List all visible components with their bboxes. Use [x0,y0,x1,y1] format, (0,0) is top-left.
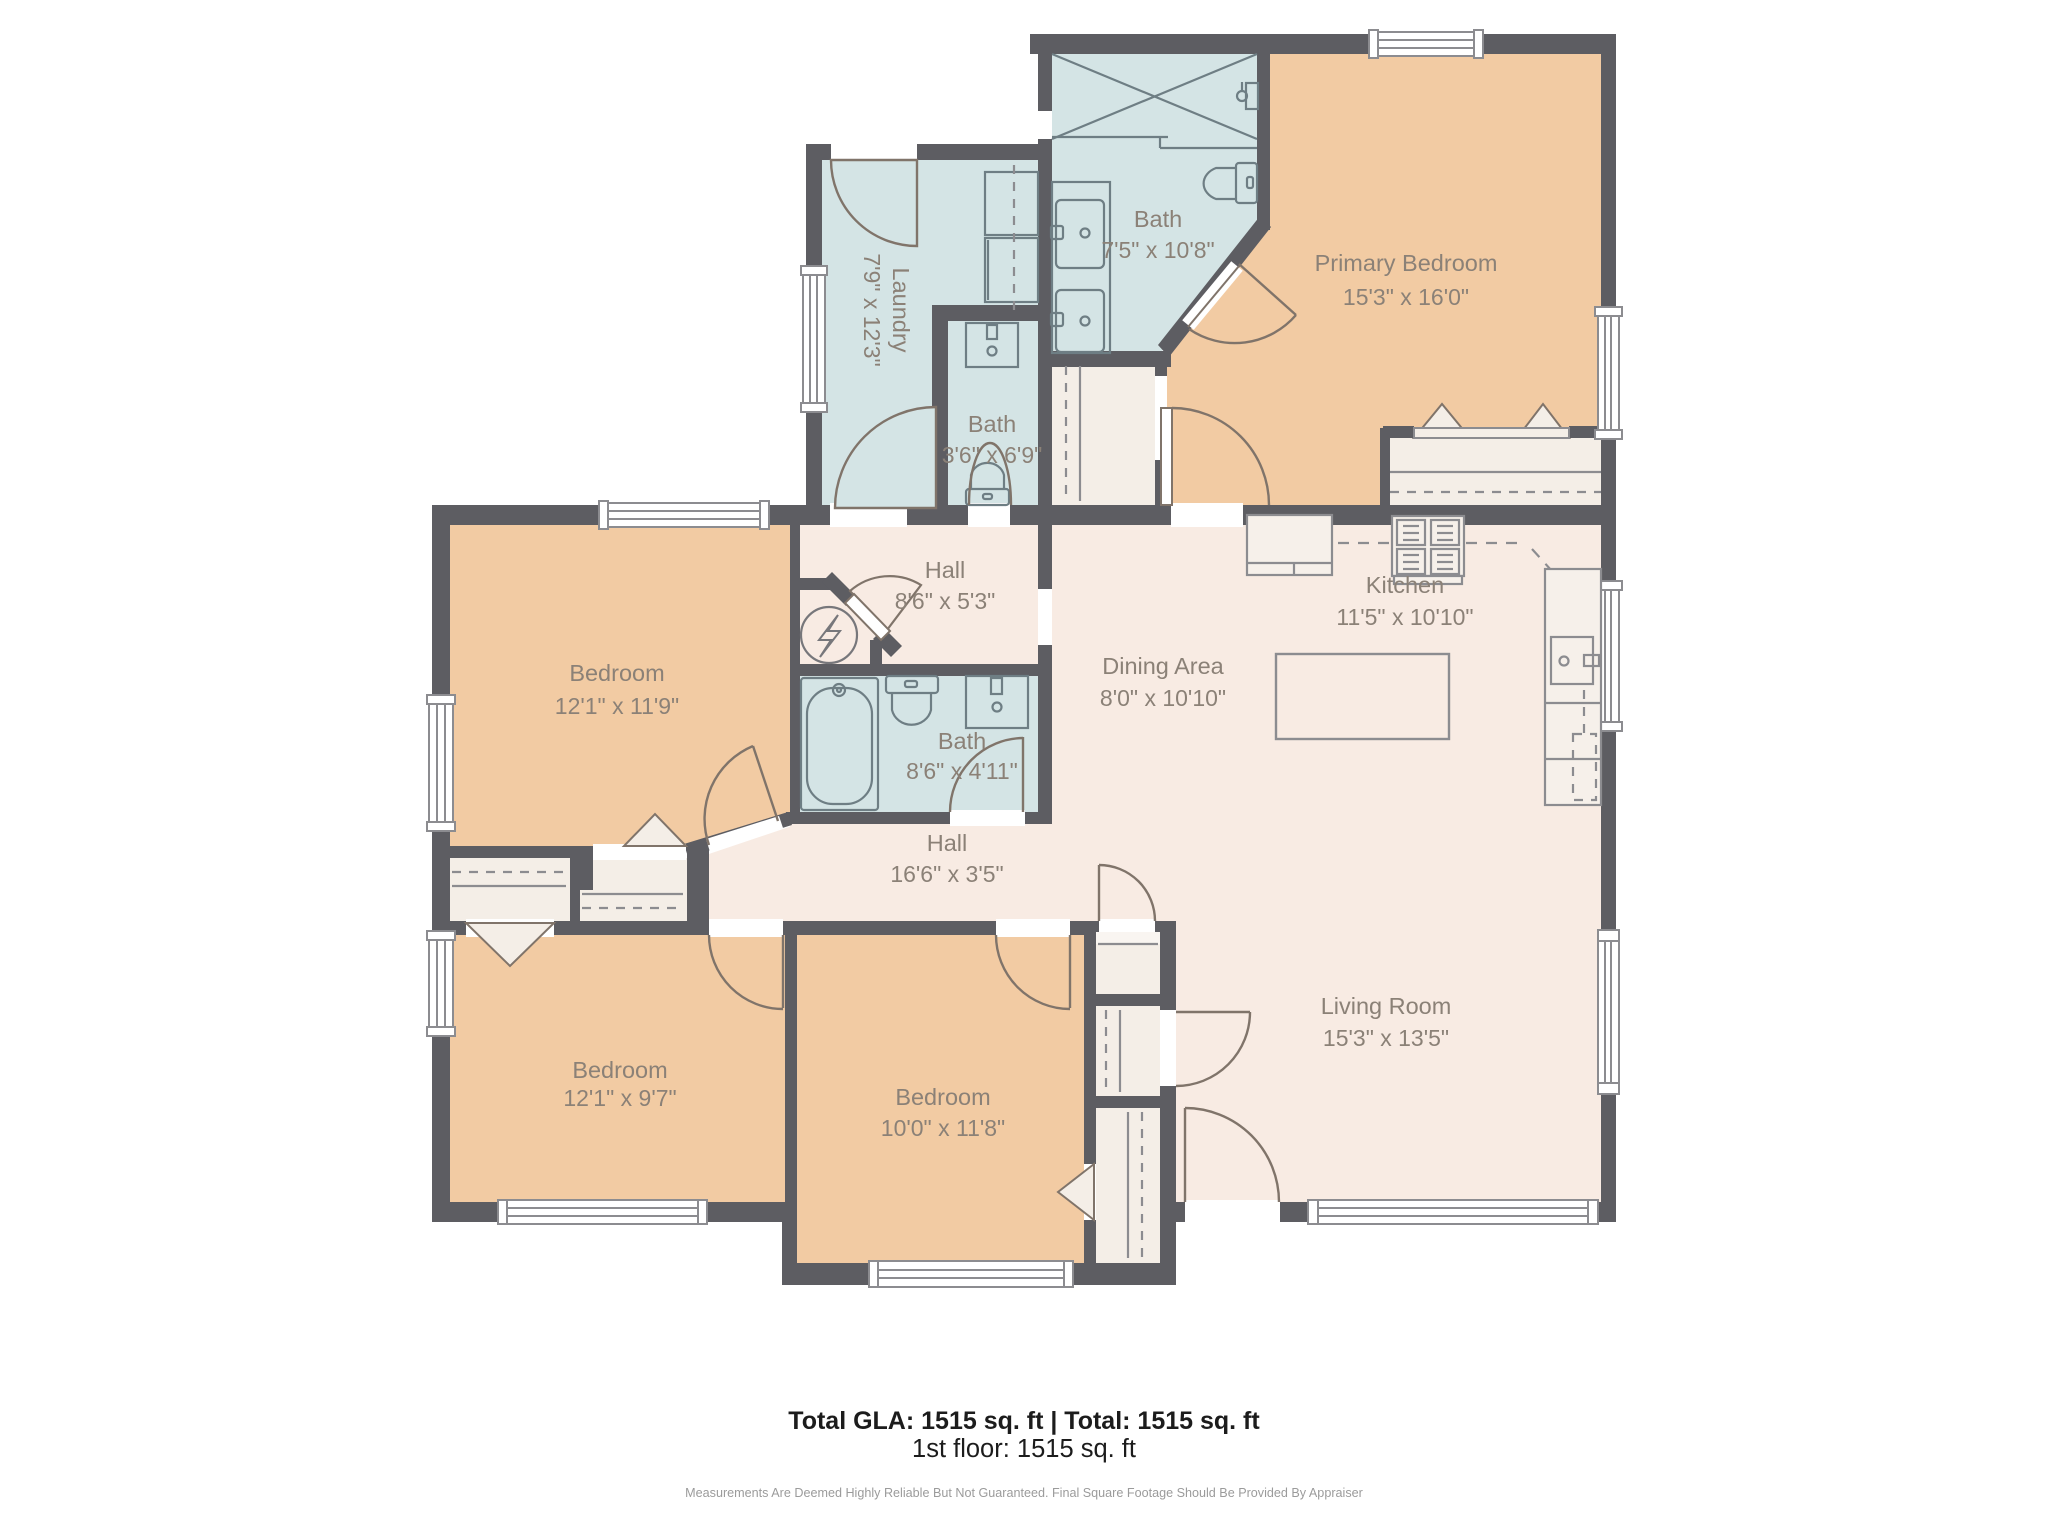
svg-text:Bath: Bath [938,728,986,754]
svg-text:Dining Area: Dining Area [1102,653,1224,679]
svg-text:12'1" x 11'9": 12'1" x 11'9" [555,693,679,719]
svg-text:Hall: Hall [927,830,967,856]
svg-text:Living Room: Living Room [1321,993,1452,1019]
svg-text:15'3" x 16'0": 15'3" x 16'0" [1343,284,1469,310]
svg-text:Bath: Bath [968,411,1016,437]
svg-text:Laundry: Laundry [888,268,914,353]
svg-text:16'6" x 3'5": 16'6" x 3'5" [890,861,1003,887]
svg-text:Bedroom: Bedroom [569,660,664,686]
svg-text:12'1" x 9'7": 12'1" x 9'7" [563,1085,676,1111]
svg-text:Bedroom: Bedroom [572,1057,667,1083]
svg-text:10'0" x 11'8": 10'0" x 11'8" [881,1115,1005,1141]
svg-text:Primary Bedroom: Primary Bedroom [1315,250,1498,276]
svg-text:8'0" x 10'10": 8'0" x 10'10" [1100,685,1226,711]
svg-text:8'6" x 4'11": 8'6" x 4'11" [906,758,1018,784]
svg-text:7'9" x 12'3": 7'9" x 12'3" [859,253,885,366]
svg-text:Bedroom: Bedroom [895,1084,990,1110]
svg-text:Total GLA: 1515 sq. ft | Total: Total GLA: 1515 sq. ft | Total: 1515 sq.… [788,1407,1260,1435]
svg-text:Bath: Bath [1134,206,1182,232]
svg-text:1st floor: 1515 sq. ft: 1st floor: 1515 sq. ft [912,1435,1136,1463]
svg-text:3'6" x 6'9": 3'6" x 6'9" [942,442,1043,468]
svg-text:7'5" x 10'8": 7'5" x 10'8" [1101,237,1214,263]
svg-text:Kitchen: Kitchen [1366,572,1444,598]
svg-text:Hall: Hall [925,557,965,583]
svg-text:11'5" x 10'10": 11'5" x 10'10" [1336,604,1473,630]
svg-text:15'3" x 13'5": 15'3" x 13'5" [1323,1025,1449,1051]
svg-text:8'6" x 5'3": 8'6" x 5'3" [895,588,996,614]
svg-text:Measurements Are Deemed Highly: Measurements Are Deemed Highly Reliable … [685,1486,1363,1500]
